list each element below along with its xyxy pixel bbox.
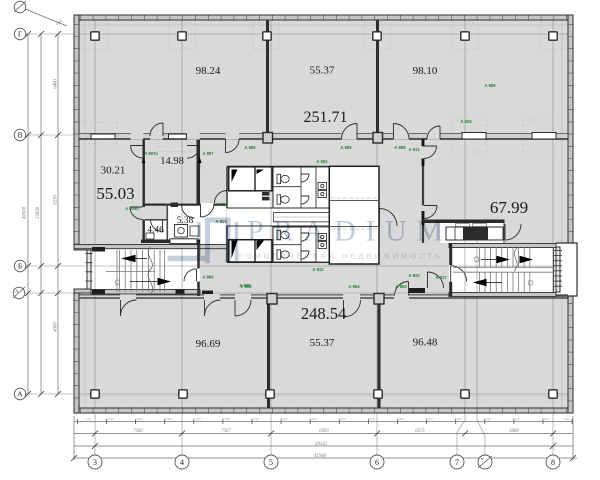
svg-text:1500: 1500 — [426, 417, 433, 421]
svg-text:1500: 1500 — [165, 417, 172, 421]
svg-text:А 914: А 914 — [216, 202, 228, 207]
svg-text:4: 4 — [180, 458, 184, 467]
svg-text:6270: 6270 — [54, 195, 59, 205]
svg-text:22800: 22800 — [36, 206, 41, 219]
svg-text:7560: 7560 — [133, 429, 143, 434]
svg-text:42800: 42800 — [23, 206, 28, 219]
svg-text:4.46: 4.46 — [147, 226, 164, 236]
svg-text:А 912: А 912 — [312, 267, 324, 272]
svg-text:6: 6 — [375, 458, 379, 467]
svg-text:1500: 1500 — [136, 417, 143, 421]
svg-text:6060: 6060 — [509, 429, 519, 434]
svg-text:А 903: А 903 — [395, 284, 407, 289]
svg-text:А 907а: А 907а — [144, 151, 158, 156]
svg-text:Г: Г — [18, 30, 23, 39]
svg-text:29242: 29242 — [315, 442, 328, 447]
svg-text:67.99: 67.99 — [490, 198, 528, 217]
svg-text:6575: 6575 — [415, 429, 425, 434]
svg-text:1500: 1500 — [194, 417, 201, 421]
svg-text:150: 150 — [85, 417, 90, 421]
svg-text:30.21: 30.21 — [101, 165, 126, 177]
svg-text:96.48: 96.48 — [413, 337, 438, 349]
svg-text:1500: 1500 — [339, 417, 346, 421]
svg-text:55.37: 55.37 — [310, 65, 335, 77]
svg-text:1500: 1500 — [513, 417, 520, 421]
svg-text:1500: 1500 — [397, 417, 404, 421]
svg-text:248.54: 248.54 — [301, 304, 346, 323]
svg-text:1500: 1500 — [310, 417, 317, 421]
svg-text:251.71: 251.71 — [304, 109, 348, 126]
svg-text:А 907: А 907 — [202, 151, 214, 156]
svg-text:14.98: 14.98 — [160, 156, 184, 167]
svg-text:А 908: А 908 — [394, 145, 406, 150]
svg-text:А 909: А 909 — [340, 145, 352, 150]
svg-text:96.69: 96.69 — [196, 338, 221, 350]
svg-text:А 915: А 915 — [460, 119, 472, 124]
svg-text:55.37: 55.37 — [310, 337, 335, 349]
svg-text:8: 8 — [551, 458, 555, 467]
svg-text:6400: 6400 — [54, 79, 59, 89]
svg-text:А 904: А 904 — [348, 284, 360, 289]
svg-text:1500: 1500 — [542, 417, 549, 421]
svg-text:Б: Б — [18, 262, 22, 271]
svg-text:4300: 4300 — [54, 322, 59, 332]
svg-text:А 901: А 901 — [316, 159, 328, 164]
svg-text:3: 3 — [93, 458, 97, 467]
svg-text:А 806: А 806 — [202, 275, 214, 280]
svg-text:1500: 1500 — [252, 417, 259, 421]
svg-text:7: 7 — [455, 458, 459, 467]
svg-text:55.03: 55.03 — [96, 184, 134, 203]
svg-text:1500: 1500 — [455, 417, 462, 421]
svg-text:А 905: А 905 — [239, 283, 251, 288]
svg-text:440: 440 — [563, 417, 568, 421]
svg-text:А 910: А 910 — [408, 273, 420, 278]
svg-text:1500: 1500 — [281, 417, 288, 421]
svg-text:1340: 1340 — [107, 417, 114, 421]
svg-text:1500: 1500 — [368, 417, 375, 421]
svg-text:В: В — [17, 131, 22, 140]
svg-text:А 906: А 906 — [484, 83, 496, 88]
svg-text:А: А — [17, 390, 23, 399]
svg-text:98.24: 98.24 — [196, 65, 221, 77]
svg-text:41940: 41940 — [314, 454, 327, 459]
svg-text:6900: 6900 — [319, 429, 329, 434]
svg-text:98.10: 98.10 — [413, 65, 438, 77]
svg-text:А 917: А 917 — [435, 275, 447, 280]
svg-text:7567: 7567 — [221, 429, 231, 434]
svg-text:А 906: А 906 — [244, 145, 256, 150]
svg-text:5: 5 — [269, 458, 273, 467]
svg-text:А 909б: А 909б — [125, 206, 139, 211]
svg-text:1500: 1500 — [223, 417, 230, 421]
svg-text:1500: 1500 — [484, 417, 491, 421]
svg-text:5.38: 5.38 — [177, 216, 194, 226]
svg-text:А 911: А 911 — [409, 147, 421, 152]
